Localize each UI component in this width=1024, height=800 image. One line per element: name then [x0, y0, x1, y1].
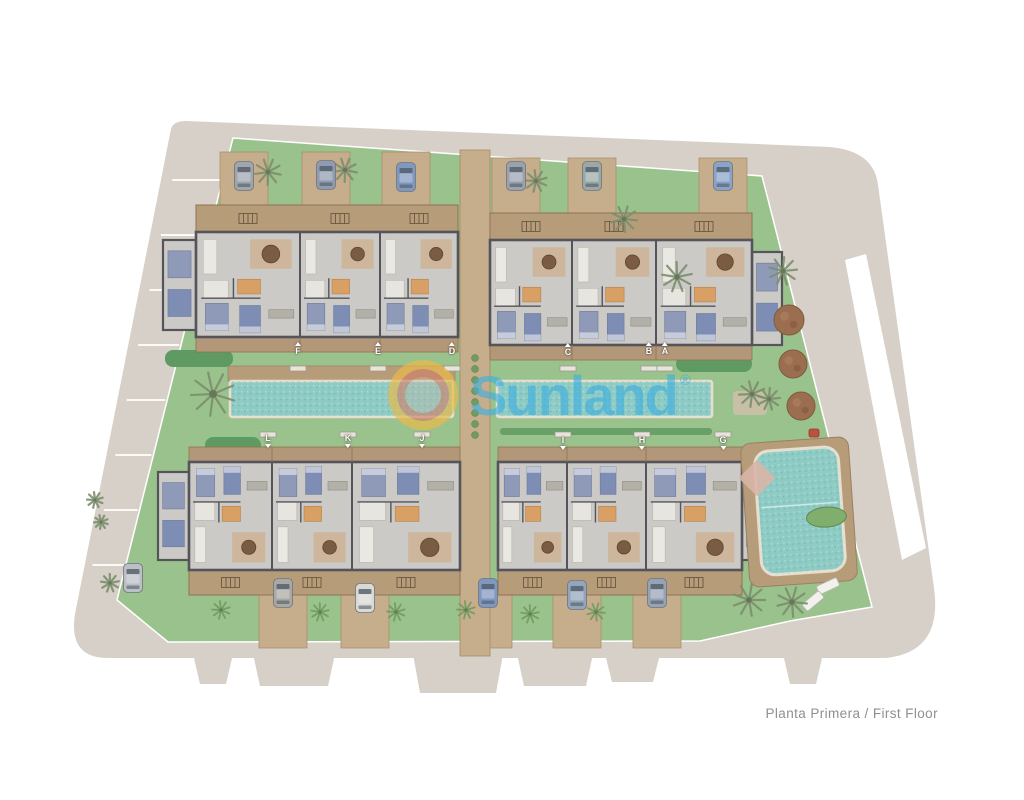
car — [648, 579, 667, 608]
building-block-lower-left — [158, 447, 460, 595]
building-block-upper-right — [490, 213, 782, 360]
building-block-lower-right — [498, 447, 772, 595]
car — [274, 579, 293, 608]
building-block-upper-left — [163, 205, 458, 352]
registered-mark: ® — [680, 372, 691, 389]
car — [568, 581, 587, 610]
car — [397, 163, 416, 192]
communal-pool-area — [740, 436, 858, 587]
site-plan-page: FEDCBALKJIHG Sunland® Planta Primera / F… — [0, 0, 1024, 800]
car — [507, 162, 526, 191]
car — [583, 162, 602, 191]
car — [317, 161, 336, 190]
car — [356, 584, 375, 613]
car — [124, 564, 143, 593]
sunland-watermark: Sunland® — [388, 360, 691, 430]
round-tree — [779, 350, 807, 378]
car — [714, 162, 733, 191]
plan-title: Planta Primera / First Floor — [0, 706, 938, 721]
bbq-grill — [809, 429, 819, 437]
car — [479, 579, 498, 608]
round-tree — [774, 305, 804, 335]
sunland-sun-icon — [388, 360, 458, 430]
round-tree — [787, 392, 815, 420]
car — [235, 162, 254, 191]
sunland-logo-text: Sunland® — [470, 363, 691, 428]
